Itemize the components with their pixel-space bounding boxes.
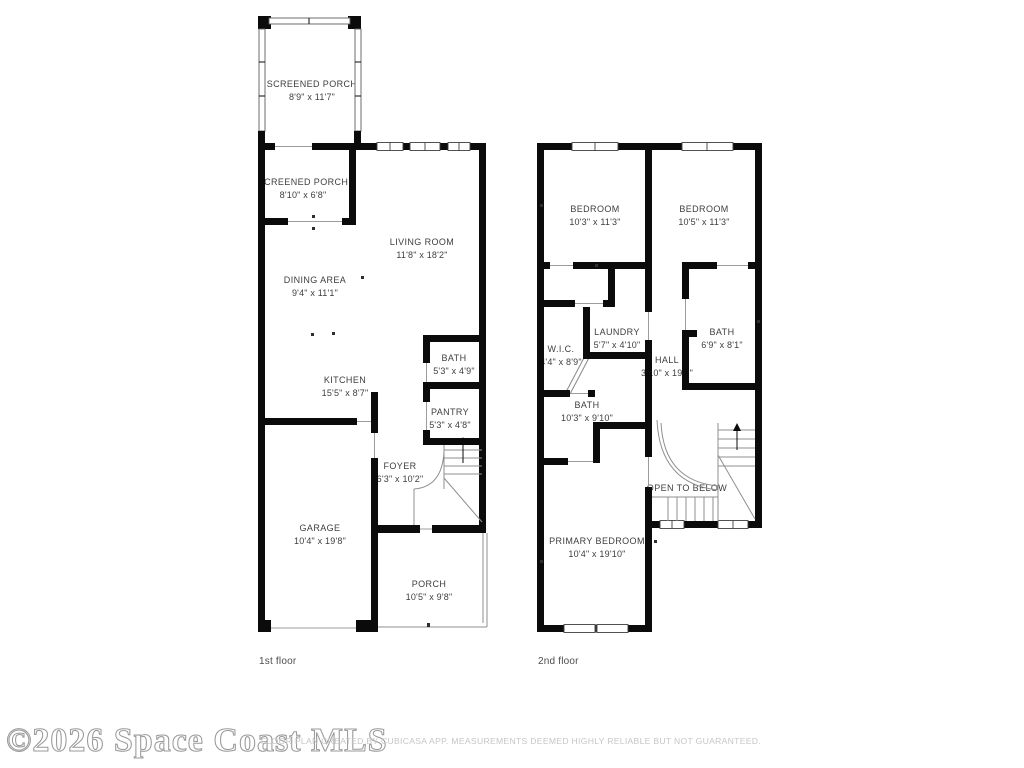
- room-name: LIVING ROOM: [390, 237, 454, 247]
- room-name: PANTRY: [429, 407, 471, 417]
- room-name: SCREENED PORCH: [258, 177, 349, 187]
- room-name: LAUNDRY: [594, 327, 641, 337]
- room-dims: 8'10" x 6'8": [258, 190, 349, 200]
- room-dims: 4'4" x 8'9": [540, 357, 582, 367]
- room-name: BEDROOM: [678, 204, 729, 214]
- room-name: BATH: [433, 353, 475, 363]
- room-dims: 10'3" x 11'3": [569, 217, 620, 227]
- room-name: DINING AREA: [284, 275, 346, 285]
- room-dims: 15'5" x 8'7": [322, 388, 369, 398]
- room-name: BEDROOM: [569, 204, 620, 214]
- room-name: GARAGE: [294, 523, 346, 533]
- floor-plan-page: SCREENED PORCH 8'9" x 11'7" SCREENED POR…: [0, 0, 1024, 768]
- room-name: BATH: [701, 327, 743, 337]
- room-name: FOYER: [377, 461, 424, 471]
- room-label-foyer: FOYER 6'3" x 10'2": [377, 461, 424, 484]
- room-dims: 6'9" x 8'1": [701, 340, 743, 350]
- room-dims: 8'9" x 11'7": [267, 92, 358, 102]
- room-dims: 5'3" x 4'8": [429, 420, 471, 430]
- room-dims: 10'4" x 19'10": [549, 549, 645, 559]
- room-dims: 9'4" x 11'1": [284, 288, 346, 298]
- floor-plan-labels: SCREENED PORCH 8'9" x 11'7" SCREENED POR…: [0, 0, 1024, 768]
- room-label-bath-upper: BATH 6'9" x 8'1": [701, 327, 743, 350]
- room-dims: 5'3" x 4'9": [433, 366, 475, 376]
- room-name: PRIMARY BEDROOM: [549, 536, 645, 546]
- room-label-bedroom-left: BEDROOM 10'3" x 11'3": [569, 204, 620, 227]
- room-dims: 5'7" x 4'10": [594, 340, 641, 350]
- first-floor-label: 1st floor: [259, 656, 296, 667]
- room-label-bath-first: BATH 5'3" x 4'9": [433, 353, 475, 376]
- room-label-bedroom-right: BEDROOM 10'5" x 11'3": [678, 204, 729, 227]
- room-name: SCREENED PORCH: [267, 79, 358, 89]
- room-dims: 6'3" x 10'2": [377, 474, 424, 484]
- room-label-porch: PORCH 10'5" x 9'8": [406, 579, 453, 602]
- room-dims: 10'5" x 11'3": [678, 217, 729, 227]
- room-name: OPEN TO BELOW: [647, 483, 727, 493]
- room-label-hall: HALL 3'10" x 19'3": [641, 355, 693, 378]
- room-label-pantry: PANTRY 5'3" x 4'8": [429, 407, 471, 430]
- room-label-laundry: LAUNDRY 5'7" x 4'10": [594, 327, 641, 350]
- room-label-wic: W.I.C. 4'4" x 8'9": [540, 344, 582, 367]
- room-name: HALL: [641, 355, 693, 365]
- room-name: KITCHEN: [322, 375, 369, 385]
- room-label-garage: GARAGE 10'4" x 19'8": [294, 523, 346, 546]
- room-name: PORCH: [406, 579, 453, 589]
- room-dims: 10'5" x 9'8": [406, 592, 453, 602]
- cubicasa-disclaimer: FLOOR PLAN CREATED BY CUBICASA APP. MEAS…: [261, 736, 761, 746]
- room-name: BATH: [561, 400, 613, 410]
- room-dims: 11'8" x 18'2": [390, 250, 454, 260]
- second-floor-label: 2nd floor: [538, 656, 579, 667]
- room-dims: 10'4" x 19'8": [294, 536, 346, 546]
- room-dims: 10'3" x 9'10": [561, 413, 613, 423]
- room-label-screened-porch-upper: SCREENED PORCH 8'9" x 11'7": [267, 79, 358, 102]
- room-label-screened-porch-lower: SCREENED PORCH 8'10" x 6'8": [258, 177, 349, 200]
- room-label-open-to-below: OPEN TO BELOW: [647, 483, 727, 493]
- room-label-dining-area: DINING AREA 9'4" x 11'1": [284, 275, 346, 298]
- room-dims: 3'10" x 19'3": [641, 368, 693, 378]
- room-label-bath-lower: BATH 10'3" x 9'10": [561, 400, 613, 423]
- room-name: W.I.C.: [540, 344, 582, 354]
- room-label-kitchen: KITCHEN 15'5" x 8'7": [322, 375, 369, 398]
- room-label-living-room: LIVING ROOM 11'8" x 18'2": [390, 237, 454, 260]
- room-label-primary-bedroom: PRIMARY BEDROOM 10'4" x 19'10": [549, 536, 645, 559]
